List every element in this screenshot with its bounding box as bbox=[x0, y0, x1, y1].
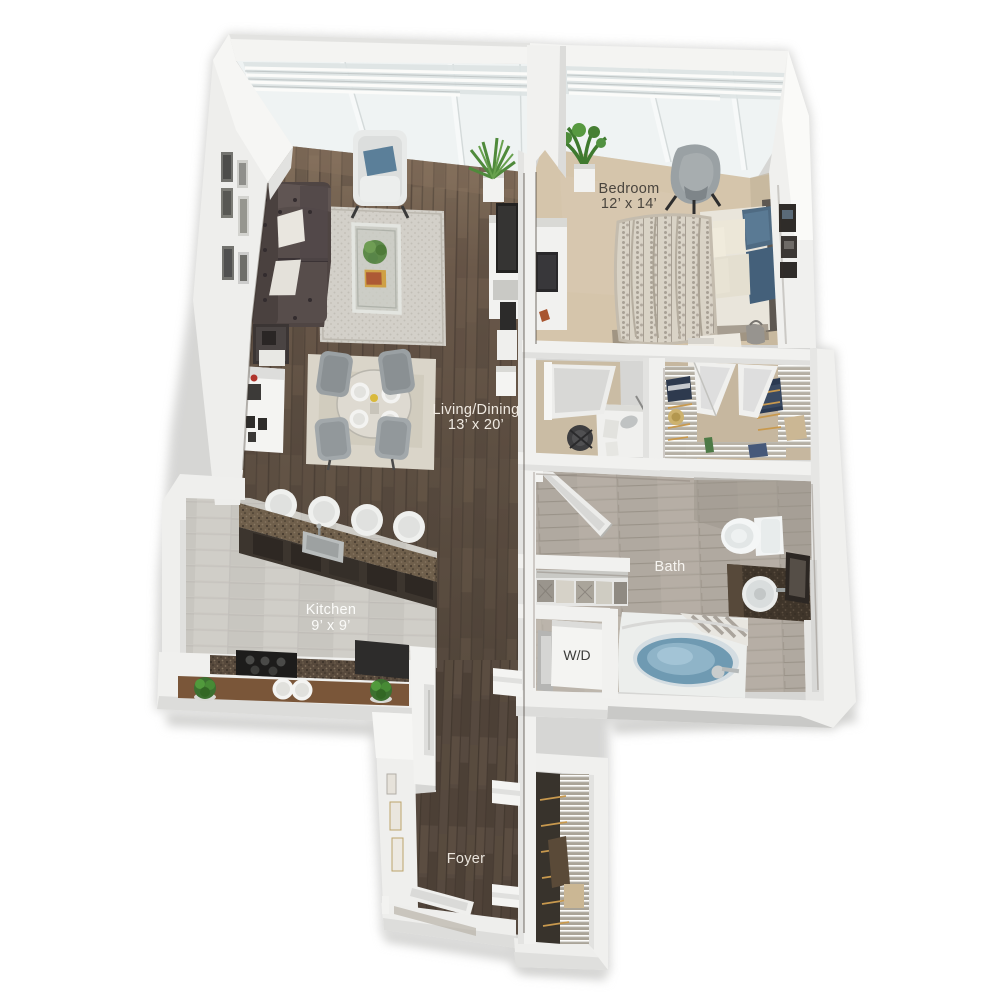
svg-text:W/D: W/D bbox=[563, 647, 590, 663]
svg-text:13’ x 20’: 13’ x 20’ bbox=[448, 417, 504, 433]
svg-text:9’ x 9’: 9’ x 9’ bbox=[311, 618, 350, 634]
svg-text:Bedroom: Bedroom bbox=[599, 181, 660, 197]
svg-text:Kitchen: Kitchen bbox=[306, 602, 356, 618]
svg-text:12’ x 14’: 12’ x 14’ bbox=[601, 196, 657, 212]
svg-text:Foyer: Foyer bbox=[447, 851, 486, 867]
svg-text:Bath: Bath bbox=[654, 559, 685, 575]
svg-text:Living/Dining: Living/Dining bbox=[433, 402, 520, 418]
